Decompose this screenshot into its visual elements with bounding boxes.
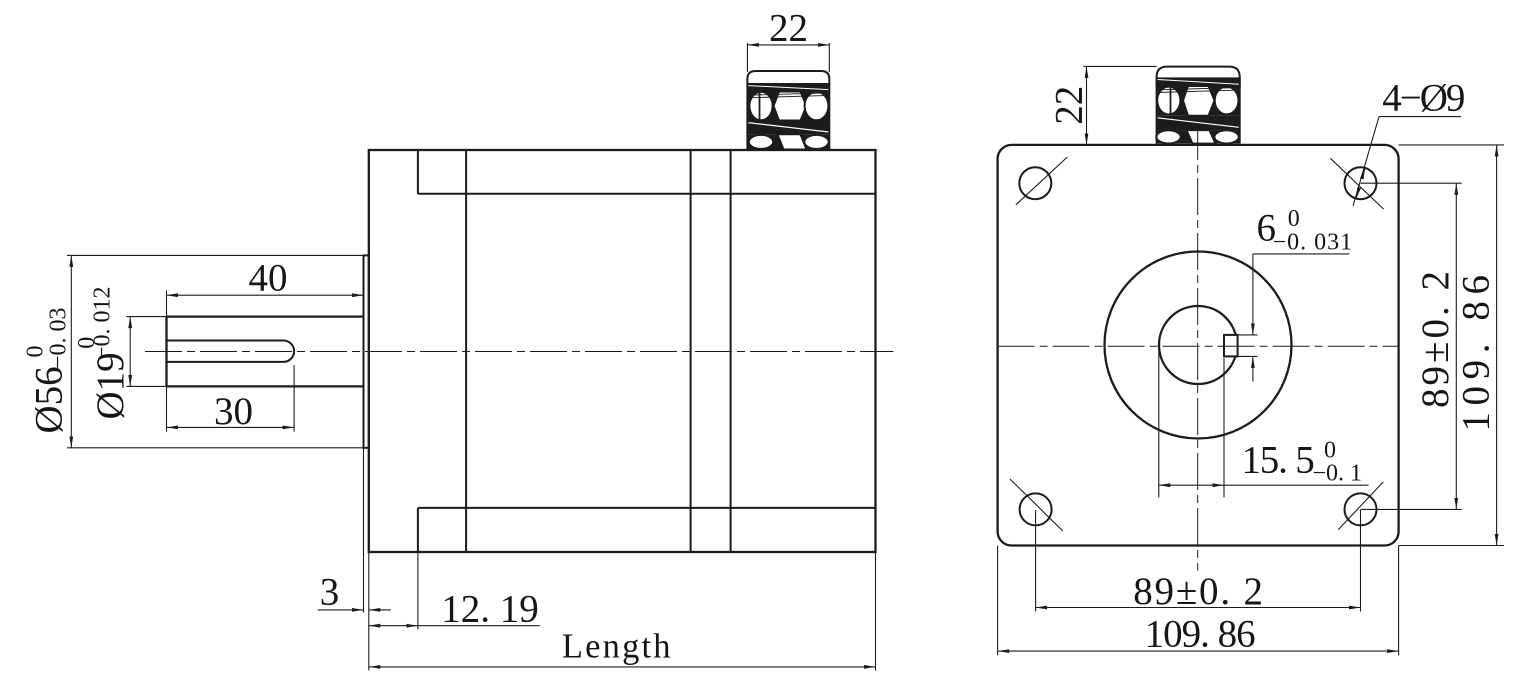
svg-text:Length: Length <box>562 628 673 666</box>
svg-text:89±0. 2: 89±0. 2 <box>1133 570 1265 613</box>
svg-text:−0. 031: −0. 031 <box>1273 229 1354 255</box>
svg-text:Ø19: Ø19 <box>89 352 132 419</box>
svg-text:22: 22 <box>769 7 808 50</box>
svg-text:22: 22 <box>1048 86 1091 125</box>
svg-text:15. 5: 15. 5 <box>1242 439 1314 482</box>
svg-text:12. 19: 12. 19 <box>441 587 539 630</box>
svg-text:−0. 1: −0. 1 <box>1313 461 1363 487</box>
svg-text:4−Ø9: 4−Ø9 <box>1382 77 1464 120</box>
svg-text:Ø56: Ø56 <box>28 366 71 433</box>
svg-text:89±0. 2: 89±0. 2 <box>1414 268 1457 408</box>
svg-text:−0. 03: −0. 03 <box>46 307 72 369</box>
svg-text:40: 40 <box>249 256 288 299</box>
svg-text:0: 0 <box>1288 206 1300 232</box>
svg-text:109. 86: 109. 86 <box>1455 268 1498 431</box>
svg-text:3: 3 <box>320 571 340 614</box>
svg-text:−0. 012: −0. 012 <box>89 286 115 360</box>
svg-text:30: 30 <box>214 390 253 433</box>
svg-text:109. 86: 109. 86 <box>1145 613 1256 656</box>
